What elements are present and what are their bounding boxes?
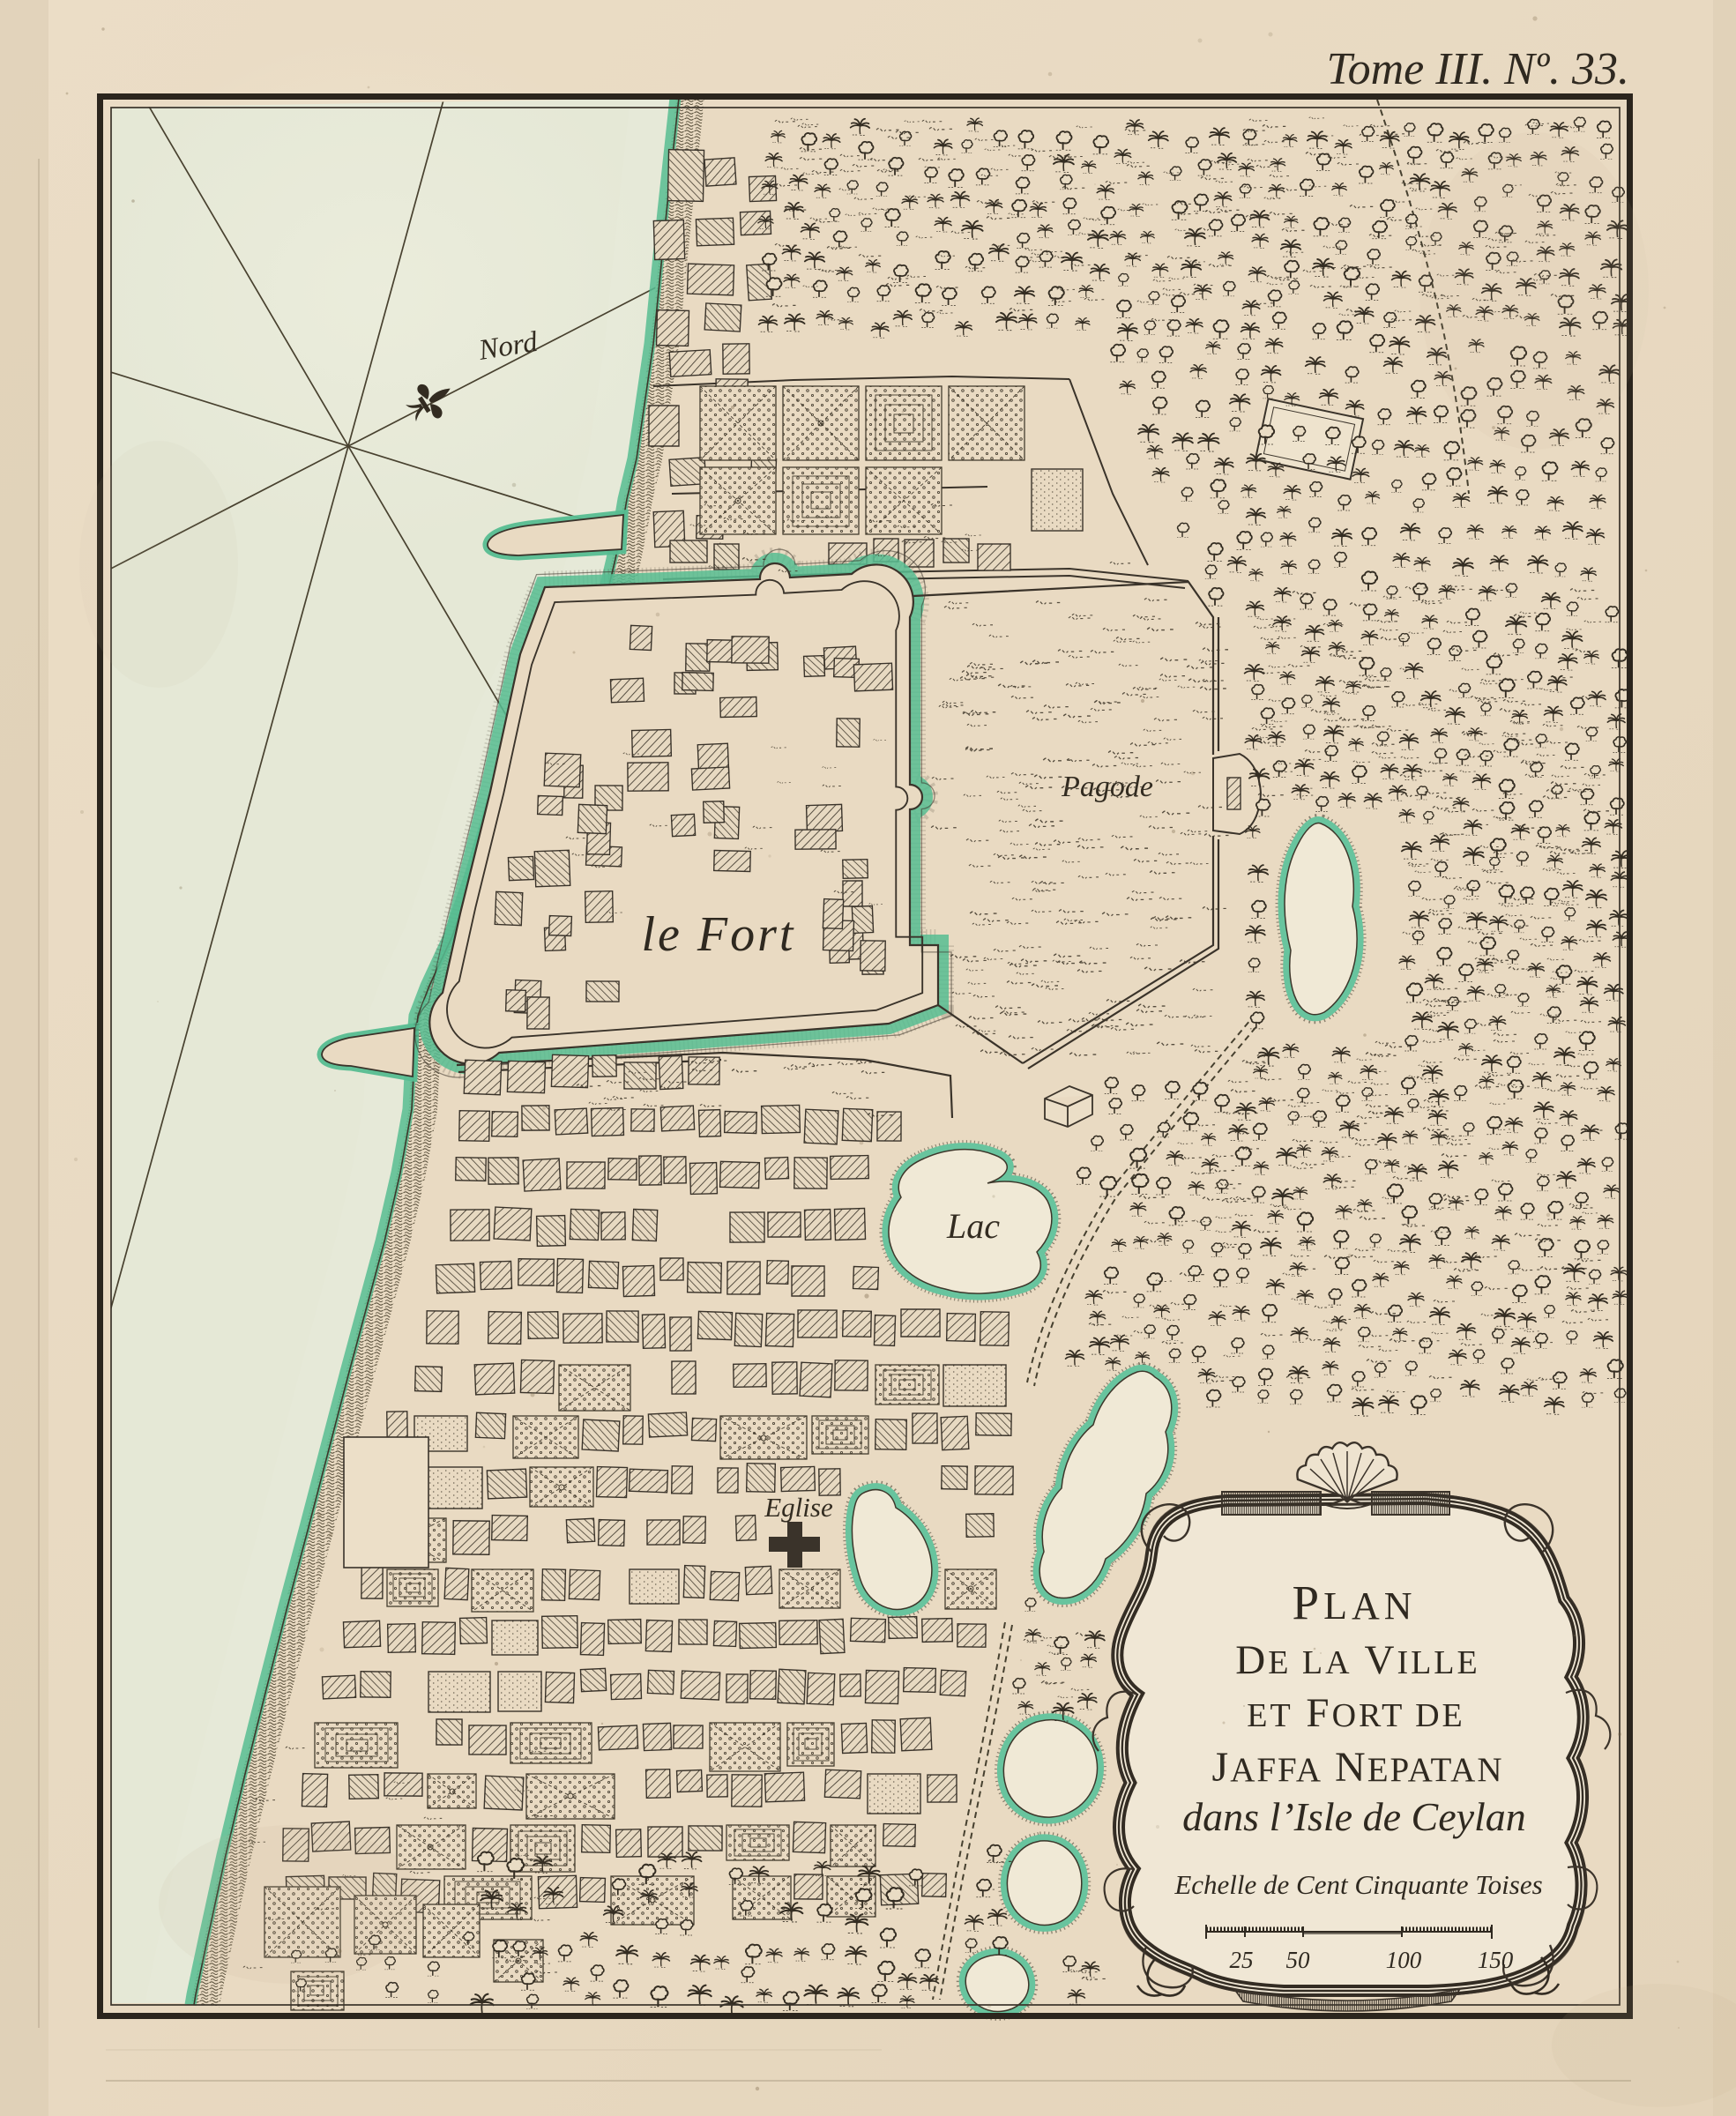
svg-text:Tome III. Nº. 33.: Tome III. Nº. 33. [1326,44,1629,94]
svg-text:le Fort: le Fort [642,907,796,962]
svg-text:Eglise: Eglise [764,1492,833,1523]
svg-text:100: 100 [1386,1947,1422,1973]
svg-text:DE LA VILLE: DE LA VILLE [1235,1637,1479,1683]
svg-text:25: 25 [1230,1947,1254,1973]
svg-text:JAFFA NEPATAN: JAFFA NEPATAN [1212,1744,1504,1791]
svg-text:150: 150 [1478,1947,1514,1973]
svg-text:Echelle de Cent Cinquante Tois: Echelle de Cent Cinquante Toises [1173,1869,1542,1900]
svg-text:PLAN: PLAN [1292,1576,1416,1629]
svg-text:Pagode: Pagode [1061,771,1153,803]
svg-text:50: 50 [1286,1947,1311,1973]
svg-text:ET FORT DE: ET FORT DE [1247,1690,1465,1736]
svg-text:Lac: Lac [946,1206,1000,1246]
svg-text:dans l’Isle de Ceylan: dans l’Isle de Ceylan [1182,1794,1526,1839]
